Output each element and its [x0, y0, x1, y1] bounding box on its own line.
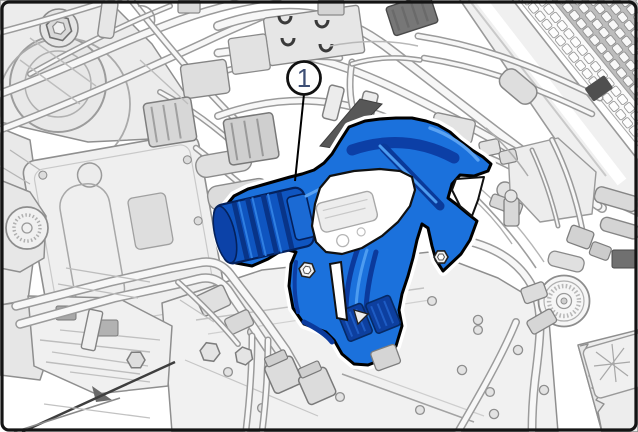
svg-text:1: 1 [297, 63, 311, 93]
